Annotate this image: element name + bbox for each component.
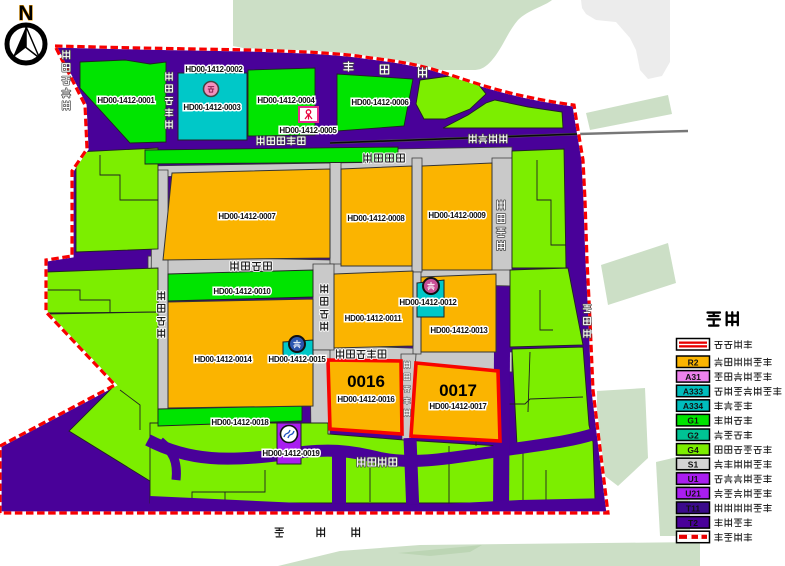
svg-text:HD00-1412-0003: HD00-1412-0003 [183, 103, 241, 112]
svg-text:HD00-1412-0019: HD00-1412-0019 [262, 449, 320, 458]
svg-text:G2: G2 [687, 430, 699, 440]
svg-text:HD00-1412-0018: HD00-1412-0018 [211, 418, 269, 427]
svg-text:U21: U21 [685, 489, 701, 499]
svg-text:HD00-1412-0006: HD00-1412-0006 [351, 98, 409, 107]
svg-text:HD00-1412-0002: HD00-1412-0002 [185, 65, 243, 74]
svg-text:HD00-1412-0012: HD00-1412-0012 [399, 298, 457, 307]
svg-text:HD00-1412-0004: HD00-1412-0004 [257, 96, 315, 105]
svg-text:HD00-1412-0011: HD00-1412-0011 [345, 314, 403, 323]
svg-text:A334: A334 [683, 401, 704, 411]
svg-text:HD00-1412-0001: HD00-1412-0001 [97, 96, 155, 105]
svg-text:A31: A31 [685, 372, 701, 382]
svg-text:0016: 0016 [347, 372, 385, 391]
svg-text:HD00-1412-0009: HD00-1412-0009 [428, 211, 486, 220]
svg-text:N: N [18, 2, 33, 25]
svg-text:U1: U1 [688, 474, 699, 484]
svg-text:A333: A333 [683, 387, 704, 397]
svg-text:HD00-1412-0008: HD00-1412-0008 [347, 214, 405, 223]
svg-text:G4: G4 [687, 445, 699, 455]
svg-text:S1: S1 [688, 460, 699, 470]
svg-text:T11: T11 [686, 503, 700, 513]
svg-text:HD00-1412-0013: HD00-1412-0013 [430, 326, 488, 335]
svg-text:HD00-1412-0014: HD00-1412-0014 [194, 355, 252, 364]
svg-text:HD00-1412-0015: HD00-1412-0015 [268, 355, 326, 364]
svg-text:HD00-1412-0005: HD00-1412-0005 [279, 126, 337, 135]
svg-text:T2: T2 [688, 518, 698, 528]
svg-text:HD00-1412-0017: HD00-1412-0017 [429, 402, 487, 411]
svg-text:R2: R2 [688, 357, 699, 367]
svg-text:HD00-1412-0007: HD00-1412-0007 [218, 212, 276, 221]
svg-text:G1: G1 [687, 416, 699, 426]
svg-text:HD00-1412-0010: HD00-1412-0010 [213, 287, 271, 296]
svg-text:HD00-1412-0016: HD00-1412-0016 [337, 395, 395, 404]
svg-text:0017: 0017 [439, 381, 477, 400]
